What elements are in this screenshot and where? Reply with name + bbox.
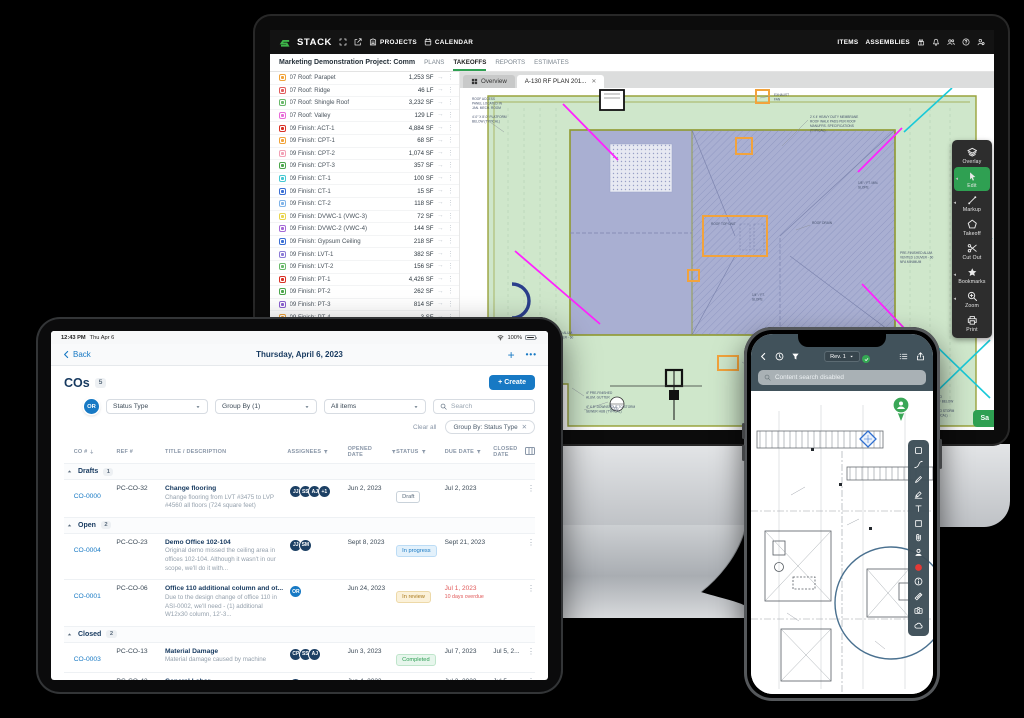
takeoff-name: 09 Finish: ACT-1 — [290, 125, 406, 132]
project-tabs: PLANSTAKEOFFSREPORTSESTIMATES — [424, 54, 569, 71]
tool-marker-icon[interactable] — [908, 487, 929, 502]
list-icon — [899, 352, 908, 361]
tool-label: Print — [966, 327, 977, 333]
row-kebab-icon[interactable]: ⋮ — [522, 485, 535, 494]
column-header[interactable]: ASSIGNEES — [287, 449, 347, 455]
kebab-menu-icon[interactable]: ⋮ — [447, 251, 454, 258]
assignee-avatar: AJ — [308, 648, 321, 661]
phone-volume-up — [742, 423, 745, 439]
calendar-icon — [424, 38, 432, 46]
flyout-arrow-icon: ◂ — [954, 200, 957, 206]
goto-icon[interactable]: → — [437, 150, 444, 157]
tablet-device: 12:43 PM Thu Apr 6 100% Thursday, April … — [36, 317, 563, 694]
takeoff-name: 09 Finish: PT-2 — [290, 288, 411, 295]
column-settings-icon[interactable] — [525, 447, 535, 455]
ref-number: PC-CO-32 — [116, 485, 165, 492]
kebab-menu-icon[interactable]: ⋮ — [447, 150, 454, 157]
due-date: Jul 2, 2023 — [445, 485, 494, 492]
tool-label: Overlay — [963, 159, 982, 165]
co-description: Material damage caused by machine — [165, 656, 287, 665]
takeoff-quantity: 1,253 SF — [409, 74, 434, 81]
tab-plans[interactable]: PLANS — [424, 54, 444, 71]
takeoff-item[interactable]: 09 Finish: LVT-1382 SF→⋮ — [270, 248, 459, 261]
flyout-arrow-icon: ◂ — [954, 272, 957, 278]
tool-person-icon[interactable] — [908, 545, 929, 560]
chevron-down-icon — [304, 404, 310, 410]
takeoff-quantity: 68 SF — [417, 137, 433, 144]
dropdown-group-by-1-[interactable]: Group By (1) — [215, 399, 317, 414]
takeoff-item[interactable]: 09 Finish: DVWC-2 (VWC-4)144 SF→⋮ — [270, 223, 459, 236]
column-header[interactable]: OPENED DATE — [348, 446, 397, 458]
table-row[interactable]: CO-0001PC-CO-06Office 110 additional col… — [64, 579, 535, 626]
account-icon — [977, 38, 985, 46]
takeoff-color-icon — [279, 87, 286, 94]
row-kebab-icon[interactable]: ⋮ — [522, 585, 535, 594]
kebab-menu-icon[interactable]: ⋮ — [447, 301, 454, 308]
tool-label: Zoom — [965, 303, 979, 309]
takeoff-quantity: 72 SF — [417, 213, 433, 220]
markup-toolbar — [908, 440, 929, 636]
dropdown-value: Group By (1) — [222, 403, 260, 410]
svg-text:ROOF TOP UNIT: ROOF TOP UNIT — [711, 222, 736, 226]
svg-text:BELOW (TYPICAL): BELOW (TYPICAL) — [472, 120, 500, 124]
column-header[interactable]: TITLE / DESCRIPTION — [165, 449, 287, 455]
grid-icon — [471, 78, 478, 85]
takeoff-name: 09 Finish: DVWC-1 (VWC-3) — [290, 213, 414, 220]
avatar[interactable]: OR — [84, 399, 99, 414]
tool-zoom[interactable]: ◂Zoom — [952, 287, 992, 311]
tool-label: Markup — [963, 207, 981, 213]
takeoff-item[interactable]: 09 Finish: ACT-14,884 SF→⋮ — [270, 122, 459, 135]
tool-info-icon[interactable] — [908, 574, 929, 589]
co-number-link[interactable]: CO-0003 — [74, 656, 101, 663]
collapse-chevron-icon — [66, 631, 73, 638]
kebab-menu-icon[interactable]: ⋮ — [447, 99, 454, 106]
star-icon — [967, 267, 978, 278]
ref-number: PC-CO-13 — [116, 648, 165, 655]
scissors-icon — [967, 243, 978, 254]
table-row[interactable]: CO-0000PC-CO-32Change flooringChange flo… — [64, 479, 535, 517]
group-label: Drafts — [78, 468, 98, 475]
gift-icon — [917, 38, 925, 46]
users-icon — [947, 38, 955, 46]
kebab-menu-icon[interactable]: ⋮ — [447, 175, 454, 182]
takeoff-quantity: 100 SF — [414, 175, 434, 182]
co-number-link[interactable]: CO-0000 — [74, 493, 101, 500]
goto-icon[interactable]: → — [437, 200, 444, 207]
svg-text:NFA MINIMUM: NFA MINIMUM — [900, 260, 922, 264]
goto-icon[interactable]: → — [437, 213, 444, 220]
tool-overlay[interactable]: Overlay — [952, 143, 992, 167]
row-kebab-icon[interactable]: ⋮ — [522, 648, 535, 657]
status-badge: In review — [396, 591, 431, 603]
clock-time: 12:43 PM — [61, 335, 86, 341]
takeoff-quantity: 3,232 SF — [409, 99, 434, 106]
kebab-menu-icon[interactable]: ⋮ — [447, 238, 454, 245]
create-button[interactable]: + Create — [489, 375, 535, 390]
markup-icon — [967, 195, 978, 206]
svg-text:ROOF WALK PADS PER ROOF: ROOF WALK PADS PER ROOF — [810, 120, 856, 124]
group-header-closed[interactable]: Closed2 — [64, 626, 535, 642]
svg-text:VENTED LOUVER - 60: VENTED LOUVER - 60 — [900, 256, 934, 260]
phone-screen: Rev. 1 Content search disabled — [751, 334, 933, 694]
takeoff-item[interactable]: 09 Finish: CPT-3357 SF→⋮ — [270, 160, 459, 173]
back-icon — [759, 352, 768, 361]
kebab-menu-icon[interactable]: ⋮ — [447, 200, 454, 207]
tool-label: Bookmarks — [958, 279, 985, 285]
takeoff-quantity: 118 SF — [414, 200, 433, 207]
status-badge: Completed — [396, 654, 436, 666]
takeoff-quantity: 357 SF — [414, 162, 434, 169]
takeoff-color-icon — [279, 99, 286, 106]
fullscreen-icon — [339, 38, 347, 46]
column-header[interactable]: DUE DATE — [445, 449, 494, 455]
takeoff-color-icon — [279, 263, 286, 270]
ref-number: PC-CO-42 — [116, 678, 165, 680]
svg-text:JAN. MECH. ROOM: JAN. MECH. ROOM — [472, 106, 501, 110]
blueprint-drawing — [751, 391, 933, 694]
content-search-input[interactable]: Content search disabled — [758, 370, 926, 385]
takeoff-item[interactable]: 09 Finish: Gypsum Ceiling218 SF→⋮ — [270, 236, 459, 249]
collapse-chevron-icon — [66, 468, 73, 475]
goto-icon[interactable]: → — [437, 263, 444, 270]
takeoff-quantity: 15 SF — [417, 188, 433, 195]
search-placeholder: Search — [451, 403, 472, 410]
filter-icon — [791, 352, 800, 361]
kebab-menu-icon[interactable]: ⋮ — [447, 162, 454, 169]
tablet-navbar: Thursday, April 6, 2023 Back + ••• — [51, 344, 548, 366]
goto-icon[interactable]: → — [437, 226, 444, 233]
takeoff-name: 07 Roof: Parapet — [290, 74, 406, 81]
svg-text:ROOF DRAIN: ROOF DRAIN — [812, 221, 833, 225]
filter-funnel-icon — [421, 449, 427, 455]
tool-cut-out[interactable]: Cut Out — [952, 239, 992, 263]
count-badge: 5 — [95, 378, 107, 388]
page-title: COs — [64, 376, 90, 390]
svg-text:ROOF ACCESS: ROOF ACCESS — [472, 97, 495, 101]
row-kebab-icon[interactable]: ⋮ — [522, 539, 535, 548]
phone-search-row: Content search disabled — [751, 366, 933, 391]
project-title: Marketing Demonstration Project: Comm — [279, 59, 415, 66]
chevron-left-icon — [62, 350, 71, 359]
goto-icon[interactable]: → — [437, 125, 444, 132]
pentagon-icon — [967, 219, 978, 230]
history-icon — [775, 352, 784, 361]
goto-icon[interactable]: → — [437, 238, 444, 245]
group-count: 2 — [106, 630, 116, 638]
due-date: Jul 2, 2023 — [445, 678, 494, 680]
takeoff-item[interactable]: 09 Finish: CPT-168 SF→⋮ — [270, 135, 459, 148]
revision-dropdown[interactable]: Rev. 1 — [824, 351, 860, 362]
kebab-menu-icon[interactable]: ⋮ — [447, 112, 454, 119]
svg-text:(TYPICAL): (TYPICAL) — [810, 129, 825, 133]
assignee-avatar: OR — [289, 585, 302, 598]
kebab-menu-icon[interactable]: ⋮ — [447, 225, 454, 232]
tool-cloud-icon[interactable] — [908, 618, 929, 633]
sort-icon — [89, 449, 95, 455]
phone-blueprint[interactable] — [751, 391, 933, 694]
takeoff-quantity: 262 SF — [414, 288, 434, 295]
tool-pen-icon[interactable] — [908, 472, 929, 487]
takeoff-name: 07 Roof: Shingle Roof — [290, 99, 406, 106]
groupby-chip[interactable]: Group By: Status Type✕ — [445, 420, 535, 434]
tool-text-T-icon[interactable] — [908, 501, 929, 516]
tool-markup[interactable]: ◂Markup — [952, 191, 992, 215]
project-bar: Marketing Demonstration Project: Comm PL… — [270, 54, 994, 72]
table-row[interactable]: CO-0004PC-CO-23Demo Office 102-104Origin… — [64, 533, 535, 580]
clear-all-link[interactable]: Clear all — [413, 424, 436, 431]
svg-text:EXHAUST: EXHAUST — [774, 93, 789, 97]
battery-icon — [525, 335, 536, 341]
dropdown-status-type[interactable]: Status Type — [106, 399, 208, 414]
search-input[interactable]: Search — [433, 399, 535, 414]
add-button[interactable]: + — [508, 349, 515, 361]
takeoff-color-icon — [279, 74, 286, 81]
stack-logo-text: STACK — [297, 37, 332, 48]
dropdown-all-items[interactable]: All items — [324, 399, 426, 414]
takeoff-quantity: 382 SF — [414, 251, 434, 258]
chip-close-icon[interactable]: ✕ — [522, 423, 527, 431]
goto-icon[interactable]: → — [437, 100, 444, 107]
tool-square-icon[interactable] — [908, 516, 929, 531]
column-header[interactable]: REF # — [116, 449, 165, 455]
svg-text:1/4″ / FT.: 1/4″ / FT. — [752, 293, 765, 297]
tool-dot-red-icon[interactable] — [908, 560, 929, 575]
takeoff-name: 09 Finish: PT-3 — [290, 301, 411, 308]
closed-date: Jul 5, 20... — [493, 678, 522, 680]
svg-text:A-330: A-330 — [610, 407, 619, 411]
wifi-icon — [497, 334, 504, 341]
takeoff-color-icon — [279, 175, 286, 182]
nav-items[interactable]: ITEMS — [837, 39, 858, 46]
takeoff-item[interactable]: 07 Roof: Valley129 LF→⋮ — [270, 110, 459, 123]
tablet-screen: 12:43 PM Thu Apr 6 100% Thursday, April … — [51, 331, 548, 680]
row-kebab-icon[interactable]: ⋮ — [522, 678, 535, 680]
takeoff-item[interactable]: 09 Finish: LVT-2156 SF→⋮ — [270, 261, 459, 274]
group-header-open[interactable]: Open2 — [64, 517, 535, 533]
group-label: Closed — [78, 631, 101, 638]
takeoff-item[interactable]: 09 Finish: CT-1100 SF→⋮ — [270, 173, 459, 186]
column-header[interactable]: CO # — [74, 449, 117, 455]
tool-camera-icon[interactable] — [908, 604, 929, 619]
svg-text:PRE-FINISHED ALUM.: PRE-FINISHED ALUM. — [900, 251, 933, 255]
column-header[interactable]: CLOSED DATE — [493, 446, 522, 458]
takeoff-color-icon — [279, 251, 286, 258]
kebab-menu-icon[interactable]: ⋮ — [447, 263, 454, 270]
takeoff-color-icon — [279, 225, 286, 232]
nav-calendar[interactable]: CALENDAR — [424, 38, 473, 46]
takeoff-quantity: 4,884 SF — [409, 125, 434, 132]
goto-icon[interactable]: → — [437, 188, 444, 195]
tab-estimates[interactable]: ESTIMATES — [534, 54, 569, 71]
kebab-menu-icon[interactable]: ⋮ — [447, 74, 454, 81]
battery-percent: 100% — [507, 335, 522, 341]
goto-icon[interactable]: → — [437, 175, 444, 182]
table-row[interactable]: CO-0002PC-CO-42General LaborRHJun 4, 202… — [64, 672, 535, 680]
takeoff-color-icon — [279, 188, 286, 195]
bell-icon — [932, 38, 940, 46]
takeoff-color-icon — [279, 288, 286, 295]
building-icon — [369, 38, 377, 46]
cursor-icon — [967, 171, 978, 182]
assignee-group: JJSSAJ+1 — [287, 485, 347, 498]
takeoff-color-icon — [279, 200, 286, 207]
takeoff-name: 09 Finish: CPT-2 — [290, 150, 406, 157]
takeoff-item[interactable]: 09 Finish: PT-3814 SF→⋮ — [270, 299, 459, 312]
assignee-group: RH — [287, 678, 347, 680]
co-number-link[interactable]: CO-0004 — [74, 547, 101, 554]
assignee-avatar: RH — [289, 678, 302, 680]
nav-assemblies[interactable]: ASSEMBLIES — [865, 39, 910, 46]
co-description: Change flooring from LVT #3475 to LVP #4… — [165, 494, 287, 511]
takeoff-color-icon — [279, 238, 286, 245]
dropdown-value: All items — [331, 403, 356, 410]
ref-number: PC-CO-23 — [116, 539, 165, 546]
tool-label: Edit — [967, 183, 977, 189]
takeoff-quantity: 814 SF — [414, 301, 434, 308]
co-title: Material Damage — [165, 648, 287, 655]
goto-icon[interactable]: → — [437, 301, 444, 308]
kebab-menu-icon[interactable]: ⋮ — [447, 125, 454, 132]
help-icon — [962, 38, 970, 46]
opened-date: Jun 3, 2023 — [348, 648, 397, 655]
kebab-menu-icon[interactable]: ⋮ — [447, 288, 454, 295]
close-icon[interactable]: ✕ — [591, 78, 596, 85]
takeoff-name: 09 Finish: CT-1 — [290, 188, 414, 195]
goto-icon[interactable]: → — [437, 276, 444, 283]
co-title: Demo Office 102-104 — [165, 539, 287, 546]
tool-clip-icon[interactable] — [908, 531, 929, 546]
svg-text:4″ PRE-FINISHED: 4″ PRE-FINISHED — [586, 391, 613, 395]
co-title: General Labor — [165, 678, 287, 680]
opened-date: Jun 2, 2023 — [348, 485, 397, 492]
check-badge — [862, 355, 870, 363]
kebab-menu-icon[interactable]: ⋮ — [447, 137, 454, 144]
takeoff-name: 07 Roof: Valley — [290, 112, 412, 119]
table-header: CO #REF #TITLE / DESCRIPTIONASSIGNEESOPE… — [64, 442, 535, 463]
filter-funnel-icon — [323, 449, 329, 455]
takeoff-quantity: 4,426 SF — [409, 276, 434, 283]
takeoff-item[interactable]: 09 Finish: DVWC-1 (VWC-3)72 SF→⋮ — [270, 211, 459, 224]
takeoff-name: 09 Finish: CPT-3 — [290, 162, 411, 169]
group-header-drafts[interactable]: Drafts1 — [64, 463, 535, 479]
zoom-icon — [967, 291, 978, 302]
takeoff-item[interactable]: 09 Finish: PT-14,426 SF→⋮ — [270, 274, 459, 287]
back-button[interactable]: Back — [62, 350, 91, 359]
goto-icon[interactable]: → — [437, 75, 444, 82]
tool-takeoff[interactable]: Takeoff — [952, 215, 992, 239]
clock-date: Thu Apr 6 — [90, 335, 115, 341]
co-title: Office 110 additional column and ot... — [165, 585, 287, 592]
takeoff-item[interactable]: 09 Finish: CT-2118 SF→⋮ — [270, 198, 459, 211]
tool-edit[interactable]: ◂Edit — [954, 167, 990, 191]
status-badge: Draft — [396, 491, 420, 503]
tool-print[interactable]: Print — [952, 311, 992, 335]
takeoff-item[interactable]: 07 Roof: Ridge46 LF→⋮ — [270, 85, 459, 98]
tool-sel-rect-icon[interactable] — [908, 443, 929, 458]
svg-text:2 X 4′ HEAVY DUTY MEMBRANE: 2 X 4′ HEAVY DUTY MEMBRANE — [810, 115, 858, 119]
svg-text:SLOPE: SLOPE — [858, 186, 869, 190]
group-label: Open — [78, 522, 96, 529]
tool-bookmarks[interactable]: ◂Bookmarks — [952, 263, 992, 287]
save-button[interactable]: Sa — [973, 410, 994, 427]
goto-icon[interactable]: → — [437, 251, 444, 258]
svg-text:4′-0″ X 8′-0″ PLATFORM: 4′-0″ X 8′-0″ PLATFORM — [472, 115, 507, 119]
takeoff-quantity: 46 LF — [418, 87, 434, 94]
takeoff-item[interactable]: 09 Finish: CT-115 SF→⋮ — [270, 185, 459, 198]
caret-down-icon — [849, 354, 854, 359]
phone-notch — [798, 334, 886, 347]
takeoff-quantity: 129 LF — [415, 112, 434, 119]
takeoff-name: 09 Finish: LVT-1 — [290, 251, 411, 258]
due-date: Jul 1, 2023 — [445, 585, 494, 592]
kebab-menu-icon[interactable]: ⋮ — [447, 213, 454, 220]
kebab-menu-icon[interactable]: ⋮ — [447, 188, 454, 195]
svg-text:PANEL LOCATED IN: PANEL LOCATED IN — [472, 102, 503, 106]
filter-row: OR Status TypeGroup By (1)All itemsSearc… — [64, 399, 535, 414]
kebab-menu-icon[interactable]: ⋮ — [447, 87, 454, 94]
takeoff-color-icon — [279, 150, 286, 157]
flyout-arrow-icon: ◂ — [954, 296, 957, 302]
nav-projects[interactable]: PROJECTS — [369, 38, 417, 46]
collapse-chevron-icon — [66, 522, 73, 529]
filter-funnel-icon — [476, 449, 482, 455]
co-table: Drafts1CO-0000PC-CO-32Change flooringCha… — [64, 463, 535, 680]
compose-icon — [354, 38, 362, 46]
goto-icon[interactable]: → — [437, 87, 444, 94]
svg-text:MANUFRS. SPECIFICATIONS: MANUFRS. SPECIFICATIONS — [810, 124, 854, 128]
takeoff-item[interactable]: 07 Roof: Parapet1,253 SF→⋮ — [270, 72, 459, 85]
app-topbar: STACK PROJECTS CALENDAR ITEMS ASSEMBLIES — [270, 30, 994, 54]
tool-ruler-icon[interactable] — [908, 589, 929, 604]
takeoff-quantity: 1,074 SF — [409, 150, 434, 157]
takeoff-item[interactable]: 09 Finish: CPT-21,074 SF→⋮ — [270, 148, 459, 161]
goto-icon[interactable]: → — [437, 289, 444, 296]
tool-arc-icon[interactable] — [908, 458, 929, 473]
kebab-menu-icon[interactable]: ⋮ — [447, 276, 454, 283]
takeoff-color-icon — [279, 301, 286, 308]
goto-icon[interactable]: → — [437, 138, 444, 145]
group-count: 2 — [101, 521, 111, 529]
tab-plan-a130[interactable]: A-130 RF PLAN 201...✕ — [517, 75, 605, 88]
takeoff-item[interactable]: 07 Roof: Shingle Roof3,232 SF→⋮ — [270, 97, 459, 110]
more-button[interactable]: ••• — [526, 350, 537, 359]
group-count: 1 — [103, 468, 113, 476]
tab-overview[interactable]: Overview — [463, 75, 515, 88]
takeoff-name: 09 Finish: LVT-2 — [290, 263, 411, 270]
table-row[interactable]: CO-0003PC-CO-13Material DamageMaterial d… — [64, 642, 535, 672]
takeoff-quantity: 218 SF — [414, 238, 434, 245]
takeoff-item[interactable]: 09 Finish: PT-2262 SF→⋮ — [270, 286, 459, 299]
co-title: Change flooring — [165, 485, 287, 492]
goto-icon[interactable]: → — [437, 112, 444, 119]
takeoff-name: 09 Finish: CPT-1 — [290, 137, 414, 144]
tab-takeoffs[interactable]: TAKEOFFS — [453, 54, 486, 71]
status-badge: In progress — [396, 545, 436, 557]
goto-icon[interactable]: → — [437, 163, 444, 170]
stack-logo-icon — [279, 37, 290, 48]
takeoff-color-icon — [279, 276, 286, 283]
tab-reports[interactable]: REPORTS — [495, 54, 525, 71]
column-header[interactable]: STATUS — [396, 449, 445, 455]
assignee-avatar: SM — [299, 539, 312, 552]
takeoff-name: 09 Finish: CT-1 — [290, 175, 411, 182]
due-date: Jul 7, 2023 — [445, 648, 494, 655]
co-number-link[interactable]: CO-0001 — [74, 593, 101, 600]
opened-date: Jun 4, 2023 — [348, 678, 397, 680]
assignee-group: JJSM — [287, 539, 347, 552]
phone-device: Rev. 1 Content search disabled — [744, 327, 940, 701]
